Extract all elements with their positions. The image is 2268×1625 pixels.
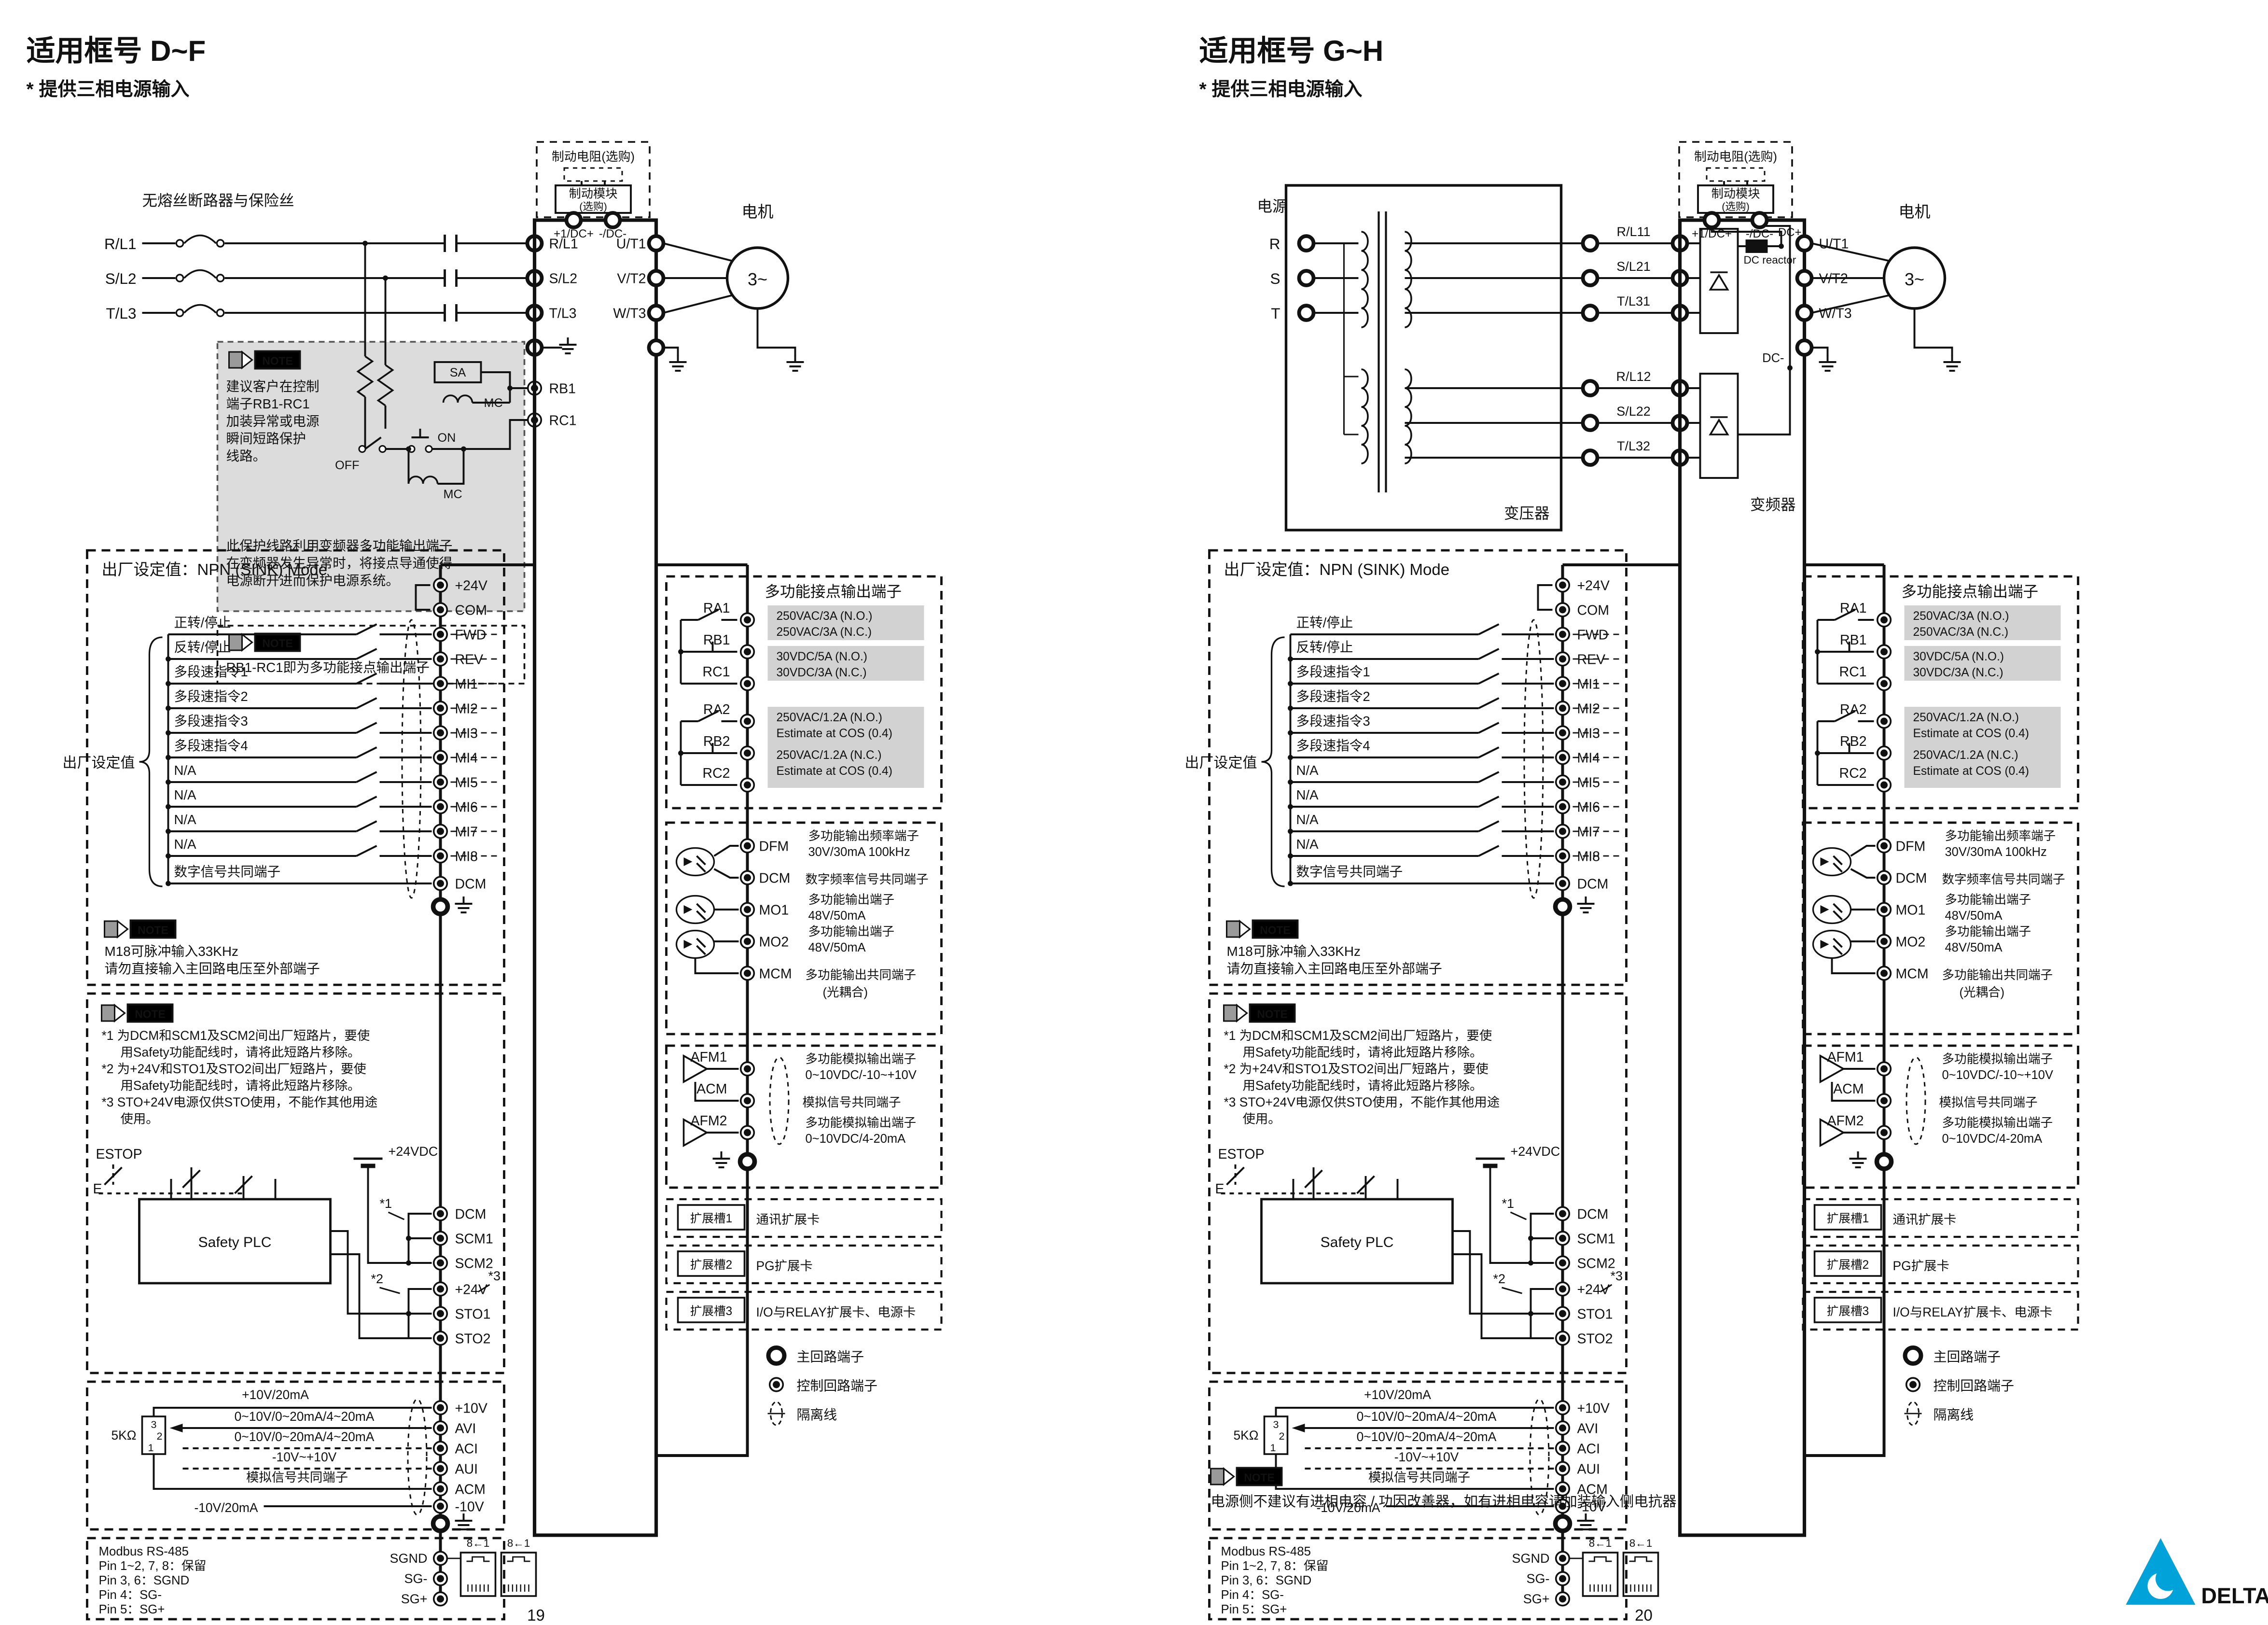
main-circuit-terminal bbox=[649, 340, 664, 355]
relay-terminal-label: RC1 bbox=[702, 664, 730, 680]
note-tag-text: NOTE bbox=[262, 354, 292, 367]
switch-blade bbox=[1479, 821, 1499, 831]
relay-terminal-label: RA2 bbox=[703, 702, 730, 717]
motor-label: 电机 bbox=[1899, 203, 1931, 221]
control-terminal-dot bbox=[1880, 1129, 1888, 1136]
junction-dot bbox=[406, 447, 411, 452]
page-19: 适用框号 D~F* 提供三相电源输入无熔丝断路器与保险丝R/L1R/L1S/L2… bbox=[27, 35, 942, 1619]
wire bbox=[1851, 846, 1876, 856]
control-terminal-dot bbox=[744, 842, 751, 850]
mf-desc: (光耦合) bbox=[1960, 986, 2004, 999]
modbus-section: Modbus RS-485Pin 1~2, 7, 8：保留Pin 3, 6：SG… bbox=[87, 1537, 536, 1619]
mf-terminal-label: DFM bbox=[759, 839, 789, 855]
output-terminal-label: W/T3 bbox=[613, 306, 646, 322]
control-terminal-dot bbox=[1559, 1485, 1566, 1493]
brake-module-optional: (选购) bbox=[1722, 200, 1750, 212]
source-phase-label: S/L2 bbox=[105, 270, 137, 287]
note-ref-1: *1 bbox=[380, 1196, 392, 1211]
expansion-slots: 扩展槽1通讯扩展卡扩展槽2PG扩展卡扩展槽3I/O与RELAY扩展卡、电源卡 bbox=[1803, 1199, 2078, 1330]
ai-terminal-label: AUI bbox=[455, 1462, 478, 1477]
rc1-terminal-label: RC1 bbox=[549, 413, 577, 429]
dc-reactor-label: DC reactor bbox=[1744, 254, 1796, 266]
ai-terminal-label: -10V bbox=[455, 1499, 484, 1515]
di-terminal-label: MI4 bbox=[455, 751, 478, 766]
ai-terminal-label: ACM bbox=[455, 1482, 486, 1498]
relay-rating: 250VAC/1.2A (N.C.) bbox=[1913, 749, 2018, 762]
rj45-jack-icon bbox=[1624, 1553, 1658, 1596]
junction-dot bbox=[166, 730, 171, 736]
modbus-section: Modbus RS-485Pin 1~2, 7, 8：保留Pin 3, 6：SG… bbox=[1210, 1537, 1658, 1619]
junction-dot bbox=[1288, 681, 1293, 686]
modbus-line: Modbus RS-485 bbox=[99, 1545, 189, 1558]
relay-terminal-label: RC2 bbox=[702, 766, 730, 781]
junction-dot bbox=[1288, 780, 1293, 785]
junction-dot bbox=[166, 881, 171, 886]
inverter-label: 变频器 bbox=[1750, 496, 1796, 513]
switch-blade bbox=[357, 846, 377, 856]
rj45-outline bbox=[461, 1553, 496, 1596]
di-function-label: 多段速指令1 bbox=[1296, 664, 1370, 679]
relay-rating: 30VDC/5A (N.O.) bbox=[777, 650, 868, 663]
relay-terminal-label: RB1 bbox=[1840, 632, 1866, 648]
input-terminal-label: T/L3 bbox=[549, 306, 577, 322]
safety-note-line: *1 为DCM和SCM1及SCM2间出厂短路片，要使 bbox=[102, 1028, 370, 1043]
pot-pin: 1 bbox=[148, 1442, 153, 1454]
control-terminal-dot bbox=[1880, 970, 1888, 977]
safety-plc-label: Safety PLC bbox=[1321, 1234, 1394, 1250]
mf-terminal-label: MO1 bbox=[1896, 903, 1926, 918]
control-terminal-dot bbox=[1880, 616, 1888, 624]
sg-terminal-label: SG- bbox=[404, 1571, 427, 1586]
note-callout: NOTE bbox=[102, 1005, 173, 1022]
ai-terminal-label: ACI bbox=[455, 1442, 478, 1457]
wire bbox=[1851, 869, 1876, 878]
junction-dot bbox=[1288, 881, 1293, 886]
slot-card-label: 通讯扩展卡 bbox=[756, 1212, 820, 1227]
rj45-pin-label: 8←1 bbox=[507, 1537, 530, 1549]
page-number-19: 19 bbox=[527, 1606, 545, 1624]
mf-desc: 多功能输出共同端子 bbox=[1942, 968, 2053, 982]
ground-icon bbox=[455, 1513, 473, 1529]
di-terminal-label: MI6 bbox=[455, 800, 478, 815]
di-terminal-label: MI8 bbox=[1577, 849, 1600, 865]
arrowhead bbox=[170, 1424, 183, 1432]
main-circuit-terminal bbox=[1299, 271, 1314, 285]
control-terminal-dot bbox=[437, 1575, 444, 1583]
control-terminal-dot bbox=[437, 656, 444, 663]
legend-label: 控制回路端子 bbox=[797, 1378, 877, 1393]
relay-terminal-label: RB2 bbox=[703, 734, 730, 749]
mf-desc: (光耦合) bbox=[823, 986, 868, 999]
note-callout: NOTE bbox=[229, 351, 300, 369]
rb-note-text: RB1-RC1即为多功能接点输出端子 bbox=[226, 660, 430, 675]
di-function-label: N/A bbox=[1296, 837, 1319, 852]
switch-blade bbox=[1479, 797, 1499, 807]
control-terminal-dot bbox=[1559, 779, 1566, 786]
ai-signal-label: 模拟信号共同端子 bbox=[246, 1470, 348, 1485]
wire bbox=[1589, 1557, 1612, 1561]
input-terminal-label: R/L12 bbox=[1616, 369, 1651, 384]
afm-terminal-label: AFM1 bbox=[1827, 1050, 1864, 1065]
note-ref-3: *3 bbox=[488, 1269, 501, 1283]
rj45-pin-label: 8←1 bbox=[467, 1537, 490, 1549]
switch-blade bbox=[1479, 772, 1499, 782]
main-circuit-terminal bbox=[1797, 340, 1812, 355]
relay-rating: 250VAC/3A (N.O.) bbox=[777, 610, 873, 623]
di-terminal-label: MI2 bbox=[1577, 701, 1600, 717]
control-terminal-dot bbox=[437, 803, 444, 811]
opto-body bbox=[677, 931, 714, 958]
modbus-line: Pin 3, 6：SGND bbox=[1221, 1574, 1312, 1587]
ai-signal-label: 0~10V/0~20mA/4~20mA bbox=[1357, 1429, 1497, 1444]
afm-desc: 模拟信号共同端子 bbox=[1939, 1096, 2038, 1109]
control-terminal-dot bbox=[1559, 803, 1566, 811]
legend-label: 主回路端子 bbox=[797, 1349, 864, 1364]
ai-signal-label: +10V/20mA bbox=[242, 1387, 309, 1402]
junction-dot bbox=[1288, 657, 1293, 662]
relay-terminal-label: RC1 bbox=[1839, 664, 1866, 680]
safety-note-line: 用Safety功能配线时，请将此短路片移除。 bbox=[121, 1079, 361, 1093]
motor-phase-text: 3~ bbox=[748, 269, 767, 289]
rb1-terminal-label: RB1 bbox=[549, 381, 576, 397]
switch-blade bbox=[1479, 624, 1499, 634]
junction-dot bbox=[461, 447, 466, 452]
p20-motor-section: 3~电机 bbox=[1797, 203, 1961, 371]
wire bbox=[1738, 368, 1790, 434]
modbus-line: Pin 3, 6：SGND bbox=[99, 1574, 190, 1587]
winding-coil bbox=[1362, 369, 1368, 463]
pot-value-label: 5KΩ bbox=[1233, 1428, 1258, 1443]
control-terminal-dot bbox=[744, 906, 751, 913]
m18-note-line: 请勿直接输入主回路电压至外部端子 bbox=[1227, 961, 1442, 976]
relay-terminal-label: RA2 bbox=[1840, 702, 1866, 717]
legend-control-terminal-dot bbox=[773, 1381, 780, 1388]
p19-motor-section: 3~电机 bbox=[649, 203, 804, 371]
input-terminal-label: R/L11 bbox=[1616, 224, 1650, 239]
ai-terminal-label: AVI bbox=[1577, 1421, 1599, 1437]
source-phase-label: T/L3 bbox=[106, 305, 136, 322]
digital-input-section: 出厂设定值：NPN (SINK) Mode+24VCOM正转/停止FWD反转/停… bbox=[63, 550, 504, 985]
di-terminal-label: DCM bbox=[1577, 877, 1609, 892]
di-function-label: N/A bbox=[174, 812, 197, 827]
control-terminal-dot bbox=[1559, 754, 1566, 761]
control-terminal-dot bbox=[1559, 582, 1566, 589]
rj45-jack-icon bbox=[1583, 1553, 1618, 1596]
control-terminal-dot bbox=[1559, 1210, 1566, 1218]
legend-main-terminal-icon bbox=[768, 1348, 784, 1364]
control-terminal-dot bbox=[744, 938, 751, 945]
mf-desc: 30V/30mA 100kHz bbox=[1945, 845, 2047, 859]
m18-note-line: M18可脉冲输入33KHz bbox=[105, 944, 238, 959]
wire bbox=[331, 1254, 432, 1338]
di-terminal-label: MI1 bbox=[455, 677, 478, 692]
shield-cable-icon bbox=[408, 1399, 427, 1515]
main-circuit-terminal bbox=[649, 271, 664, 285]
control-terminal-dot bbox=[437, 1404, 444, 1412]
junction-dot bbox=[383, 276, 388, 281]
note-pencil-icon bbox=[105, 921, 118, 937]
control-terminal-dot bbox=[1880, 938, 1888, 945]
di-function-label: 多段速指令3 bbox=[174, 714, 248, 728]
ai-signal-label: +10V/20mA bbox=[1364, 1387, 1431, 1402]
opto-body bbox=[677, 848, 714, 876]
contact bbox=[379, 446, 386, 452]
modbus-line: Pin 1~2, 7, 8：保留 bbox=[99, 1559, 207, 1573]
switch-blade bbox=[357, 797, 377, 807]
note-tag-text: NOTE bbox=[1244, 1471, 1274, 1484]
pot-value-label: 5KΩ bbox=[111, 1428, 136, 1443]
note-pencil-icon bbox=[1227, 921, 1240, 937]
mf-desc: 48V/50mA bbox=[808, 941, 866, 954]
wire bbox=[507, 1557, 530, 1561]
control-terminal-dot bbox=[437, 828, 444, 835]
analog-output-section: AFM1ACMAFM2多功能模拟输出端子0~10VDC/-10~+10V模拟信号… bbox=[667, 1046, 942, 1188]
junction-dot bbox=[166, 854, 171, 859]
afm-desc: 模拟信号共同端子 bbox=[803, 1096, 901, 1109]
delta-logo: DELTA bbox=[2126, 1538, 2268, 1608]
mf-desc: 多功能输出共同端子 bbox=[806, 968, 917, 982]
sg-terminal-label: SG+ bbox=[1523, 1592, 1550, 1606]
opto-led bbox=[1821, 857, 1829, 866]
di-terminal-label: MI4 bbox=[1577, 751, 1600, 766]
input-terminal-label: S/L22 bbox=[1616, 404, 1651, 419]
safety-note-line: 用Safety功能配线时，请将此短路片移除。 bbox=[121, 1045, 361, 1060]
pot-pin: 1 bbox=[1270, 1442, 1276, 1454]
protect-note-line: 端子RB1-RC1 bbox=[226, 396, 310, 411]
ground-terminal bbox=[1877, 1154, 1892, 1169]
mf-terminal-label: MO2 bbox=[1896, 935, 1926, 950]
page-subtitle: * 提供三相电源输入 bbox=[1199, 79, 1363, 100]
source-phase-label: R/L1 bbox=[104, 235, 137, 252]
terminal-com-label: COM bbox=[455, 603, 487, 618]
ground-terminal bbox=[1556, 1516, 1570, 1531]
wiring-diagram-canvas: 适用框号 D~F* 提供三相电源输入无熔丝断路器与保险丝R/L1R/L1S/L2… bbox=[0, 0, 2268, 1625]
di-function-label: 多段速指令1 bbox=[174, 664, 248, 679]
safety-note-line: 用Safety功能配线时，请将此短路片移除。 bbox=[1243, 1045, 1483, 1060]
slot-name: 扩展槽1 bbox=[1827, 1212, 1869, 1225]
di-terminal-label: MI1 bbox=[1577, 677, 1600, 692]
relay-rating: 250VAC/3A (N.O.) bbox=[1913, 610, 2009, 623]
control-terminal-dot bbox=[1559, 1235, 1566, 1242]
protection-note-box: NOTE建议客户在控制端子RB1-RC1加装异常或电源瞬间短路保护线路。此保护线… bbox=[218, 241, 528, 611]
relay-rating: Estimate at COS (0.4) bbox=[777, 727, 892, 740]
optocoupler-icon bbox=[677, 848, 714, 876]
safety-note-line: *2 为+24V和STO1及STO2间出厂短路片，要使 bbox=[102, 1062, 366, 1076]
breaker-contact bbox=[217, 240, 223, 247]
sa-label: SA bbox=[450, 366, 466, 379]
slot-name: 扩展槽3 bbox=[1827, 1304, 1869, 1318]
junction-dot bbox=[406, 1236, 411, 1241]
afm-terminal-label: AFM2 bbox=[690, 1113, 727, 1129]
afm-desc: 0~10VDC/-10~+10V bbox=[806, 1068, 917, 1082]
optocoupler-icon bbox=[677, 931, 714, 958]
shield-cable-icon bbox=[1906, 1057, 1925, 1144]
control-terminal-dot bbox=[744, 1129, 751, 1136]
p19-brake-section: 制动电阻(选购)制动模块(选购)+1/DC+-/DC- bbox=[537, 142, 650, 240]
pot-pin: 3 bbox=[1273, 1418, 1279, 1430]
slot-card-label: I/O与RELAY扩展卡、电源卡 bbox=[756, 1305, 916, 1319]
note-callout: NOTE bbox=[1211, 1468, 1282, 1485]
di-function-label: N/A bbox=[1296, 763, 1319, 778]
mf-desc: 48V/50mA bbox=[808, 909, 866, 923]
note-tag-text: NOTE bbox=[135, 1008, 165, 1020]
legend-control-terminal-dot bbox=[1909, 1381, 1917, 1388]
control-terminal-dot bbox=[1559, 1596, 1566, 1603]
legend-main-terminal-icon bbox=[1905, 1348, 1921, 1364]
junction-dot bbox=[166, 755, 171, 760]
ground-icon bbox=[713, 1151, 730, 1167]
footer: 1920DELTA bbox=[527, 1538, 2268, 1624]
optocoupler-icon bbox=[1813, 848, 1851, 876]
opto-body bbox=[1813, 848, 1851, 876]
brace bbox=[139, 637, 163, 886]
brake-resistor-label: 制动电阻(选购) bbox=[552, 150, 635, 164]
safety-note-line: 使用。 bbox=[1243, 1112, 1281, 1126]
junction-dot bbox=[1779, 244, 1784, 249]
safety-note-line: 用Safety功能配线时，请将此短路片移除。 bbox=[1243, 1079, 1483, 1093]
control-terminal-dot bbox=[437, 1425, 444, 1432]
di-terminal-label: MI8 bbox=[455, 849, 478, 865]
control-terminal-dot bbox=[1559, 853, 1566, 860]
switch-blade bbox=[357, 673, 377, 684]
transformer-label: 变压器 bbox=[1504, 504, 1550, 522]
modbus-line: Pin 4：SG- bbox=[99, 1588, 162, 1602]
breaker-contact bbox=[217, 309, 223, 316]
control-terminal-dot bbox=[744, 718, 751, 725]
main-circuit-terminal bbox=[1299, 306, 1314, 320]
junction-dot bbox=[1288, 829, 1293, 834]
note-tag-text: NOTE bbox=[1260, 924, 1290, 936]
switch-blade bbox=[1479, 649, 1499, 659]
breaker-contact bbox=[176, 240, 183, 247]
relay-rating: 30VDC/5A (N.O.) bbox=[1913, 650, 2004, 663]
rj45-jack-icon bbox=[501, 1553, 536, 1596]
protect-note-line: 线路。 bbox=[226, 448, 266, 463]
m18-note-line: 请勿直接输入主回路电压至外部端子 bbox=[105, 961, 320, 976]
relay-terminal-label: RB2 bbox=[1840, 734, 1866, 749]
note-ref-2: *2 bbox=[1493, 1272, 1506, 1286]
relay-rating: 250VAC/3A (N.C.) bbox=[1913, 626, 2009, 639]
control-terminal-dot bbox=[1559, 606, 1566, 614]
ground-icon bbox=[787, 355, 804, 371]
output-terminal-label: V/T2 bbox=[617, 271, 646, 287]
control-terminal-dot bbox=[1559, 828, 1566, 835]
switch-blade bbox=[357, 723, 377, 733]
sink-mode-title: 出厂设定值：NPN (SINK) Mode bbox=[1224, 560, 1450, 578]
junction-dot bbox=[166, 706, 171, 711]
sto-terminal-label: STO1 bbox=[455, 1307, 491, 1322]
main-circuit-terminal bbox=[1797, 236, 1812, 251]
afm-terminal-label: ACM bbox=[696, 1081, 727, 1097]
breaker-contact bbox=[217, 275, 223, 281]
brake-resistor-icon bbox=[1707, 168, 1765, 181]
ground-terminal bbox=[740, 1154, 755, 1169]
breaker-label: 无熔丝断路器与保险丝 bbox=[142, 192, 294, 209]
di-function-label: N/A bbox=[174, 763, 197, 778]
estop-label: ESTOP bbox=[1218, 1147, 1265, 1162]
main-circuit-terminal bbox=[649, 236, 664, 251]
ai-terminal-label: AUI bbox=[1577, 1462, 1600, 1477]
mf-desc: 多功能输出端子 bbox=[1945, 925, 2031, 939]
di-terminal-label: FWD bbox=[1577, 628, 1609, 643]
junction-dot bbox=[166, 804, 171, 810]
mf-desc: 多功能输出频率端子 bbox=[1945, 829, 2056, 843]
sto-terminal-label: STO2 bbox=[1577, 1331, 1613, 1347]
safety-note-line: 使用。 bbox=[121, 1112, 159, 1126]
di-terminal-label: MI5 bbox=[1577, 775, 1600, 791]
di-terminal-label: REV bbox=[1577, 652, 1606, 668]
opto-body bbox=[677, 896, 714, 924]
opto-led bbox=[684, 857, 693, 866]
output-terminal-label: U/T1 bbox=[1819, 237, 1849, 252]
sto-terminal-label: DCM bbox=[1577, 1207, 1609, 1222]
junction-dot bbox=[1288, 854, 1293, 859]
ai-terminal-label: ACI bbox=[1577, 1442, 1600, 1457]
control-terminal-dot bbox=[1559, 1404, 1566, 1412]
control-terminal-dot bbox=[437, 1310, 444, 1317]
control-terminal-dot bbox=[1559, 1445, 1566, 1452]
control-terminal-dot bbox=[744, 970, 751, 977]
sto-terminal-label: STO2 bbox=[455, 1331, 491, 1347]
ai-terminal-label: +10V bbox=[455, 1401, 487, 1416]
control-terminal-dot bbox=[1559, 729, 1566, 737]
junction-dot bbox=[1288, 730, 1293, 736]
wire bbox=[664, 348, 678, 356]
note-pencil-icon bbox=[102, 1005, 115, 1021]
switch-blade bbox=[1479, 846, 1499, 856]
junction-dot bbox=[507, 386, 513, 391]
jumper-24v-com bbox=[1538, 585, 1553, 610]
control-terminal-dot bbox=[1880, 1097, 1888, 1105]
m18-note-line: M18可脉冲输入33KHz bbox=[1227, 944, 1361, 959]
control-terminal-dot bbox=[1559, 1286, 1566, 1293]
factory-default-label: 出厂设定值 bbox=[1185, 755, 1257, 771]
slot-name: 扩展槽2 bbox=[690, 1258, 732, 1272]
brake-resistor-icon bbox=[564, 168, 622, 181]
terminal-24v-label: +24V bbox=[455, 578, 487, 594]
control-terminal-dot bbox=[1880, 782, 1888, 789]
control-terminal-dot bbox=[744, 750, 751, 757]
ground-icon bbox=[455, 897, 473, 912]
di-terminal-label: REV bbox=[455, 652, 484, 668]
wire bbox=[714, 846, 739, 856]
wire bbox=[758, 308, 795, 356]
switch-blade bbox=[357, 698, 377, 708]
p19-control-sections: 出厂设定值：NPN (SINK) Mode+24VCOM正转/停止FWD反转/停… bbox=[63, 550, 942, 1619]
control-terminal-dot bbox=[437, 729, 444, 737]
safety-note-line: *2 为+24V和STO1及STO2间出厂短路片，要使 bbox=[1224, 1062, 1489, 1076]
protect-note-line: 建议客户在控制 bbox=[226, 379, 320, 394]
control-terminal-dot bbox=[1880, 874, 1888, 882]
wire bbox=[1812, 243, 1889, 261]
junction-dot bbox=[1787, 365, 1793, 371]
control-terminal-dot bbox=[437, 1210, 444, 1218]
multifunction-output-section: DFMDCMMO1MO2MCM多功能输出频率端子30V/30mA 100kHz数… bbox=[1803, 823, 2078, 1034]
legend-label: 隔离线 bbox=[1934, 1407, 1974, 1422]
input-terminal-label: S/L2 bbox=[549, 271, 578, 287]
ai-signal-label: -10V~+10V bbox=[272, 1450, 337, 1464]
ai-terminal-label: +10V bbox=[1577, 1401, 1610, 1416]
slot-card-label: I/O与RELAY扩展卡、电源卡 bbox=[1893, 1305, 2053, 1319]
input-terminal-label: S/L21 bbox=[1616, 259, 1651, 274]
rj45-outline bbox=[1583, 1553, 1618, 1596]
modbus-line: Pin 4：SG- bbox=[1221, 1588, 1284, 1602]
control-terminal-dot bbox=[437, 1503, 444, 1510]
control-terminal-dot bbox=[1559, 1425, 1566, 1432]
diode-icon bbox=[1711, 275, 1728, 290]
note-ref-1: *1 bbox=[1502, 1196, 1515, 1211]
delta-swoosh-cyan bbox=[2156, 1567, 2180, 1591]
